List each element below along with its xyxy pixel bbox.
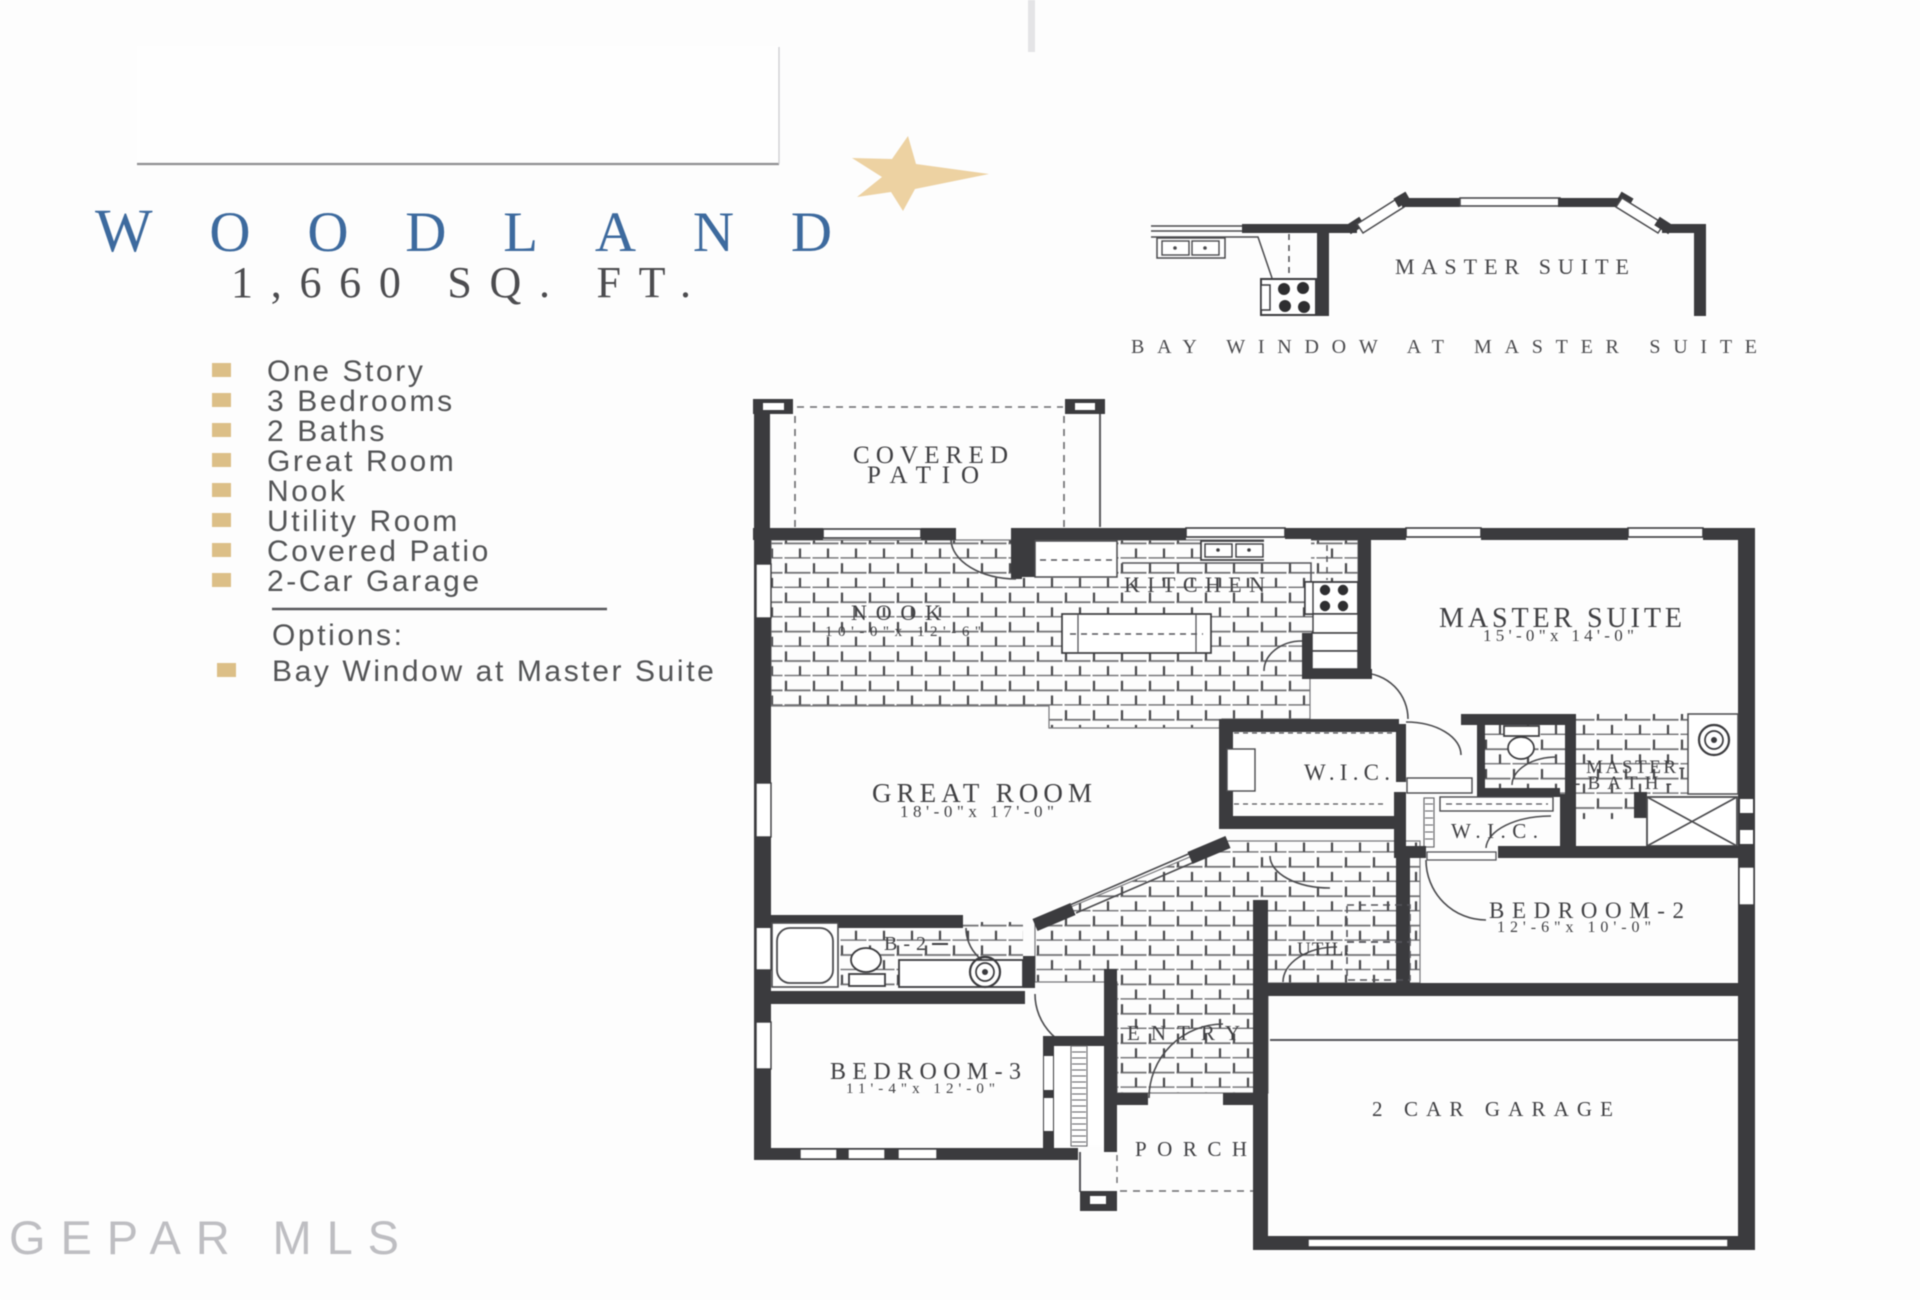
- svg-text:3 Bedrooms: 3 Bedrooms: [267, 385, 455, 418]
- svg-text:B-2: B-2: [884, 933, 926, 955]
- svg-text:UTIL.: UTIL.: [1297, 939, 1349, 960]
- svg-text:Bay Window at Master Suite: Bay Window at Master Suite: [272, 655, 716, 688]
- svg-text:W.I.C.: W.I.C.: [1304, 760, 1390, 785]
- svg-text:Options:: Options:: [272, 619, 405, 652]
- svg-text:MASTER SUITE: MASTER SUITE: [1439, 603, 1682, 634]
- svg-text:One Story: One Story: [267, 355, 425, 388]
- svg-text:2-Car Garage: 2-Car Garage: [267, 565, 482, 598]
- svg-text:Great Room: Great Room: [267, 445, 456, 478]
- svg-text:GEPAR MLS: GEPAR MLS: [9, 1211, 399, 1264]
- svg-text:2 Baths: 2 Baths: [267, 415, 387, 448]
- svg-text:Covered Patio: Covered Patio: [267, 535, 491, 568]
- svg-text:Nook: Nook: [267, 475, 347, 508]
- svg-text:2 CAR GARAGE: 2 CAR GARAGE: [1372, 1097, 1613, 1121]
- svg-text:Utility Room: Utility Room: [267, 505, 460, 538]
